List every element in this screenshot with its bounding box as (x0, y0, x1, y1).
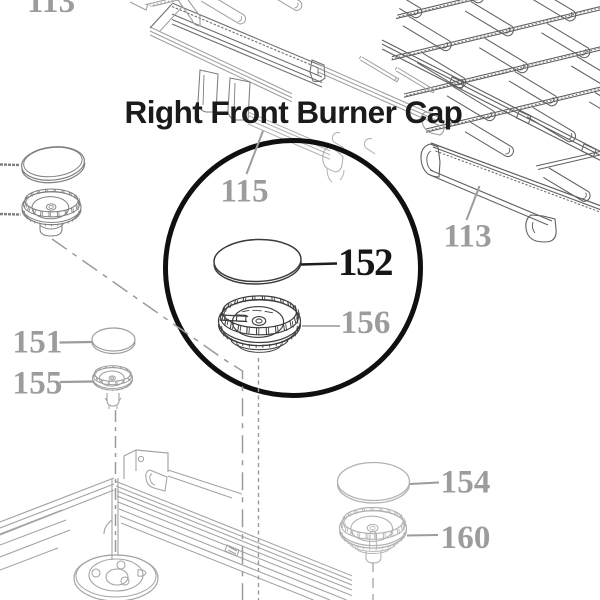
svg-text:160: 160 (441, 520, 491, 556)
svg-text:Right Front Burner Cap: Right Front Burner Cap (125, 94, 463, 130)
svg-text:113: 113 (27, 0, 75, 20)
svg-text:113: 113 (444, 219, 492, 255)
svg-text:115: 115 (221, 174, 269, 210)
svg-text:155: 155 (13, 366, 63, 402)
svg-text:152: 152 (338, 241, 392, 284)
svg-text:154: 154 (441, 465, 491, 501)
svg-text:151: 151 (13, 325, 63, 361)
svg-text:156: 156 (341, 305, 391, 341)
